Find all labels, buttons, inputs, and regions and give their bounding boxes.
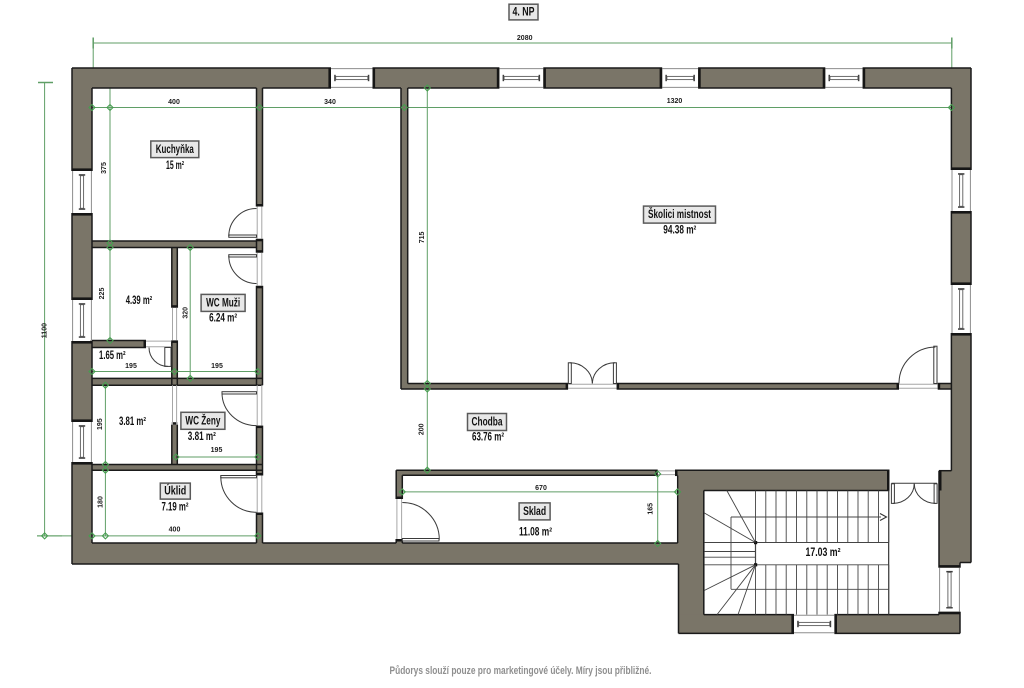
svg-text:1320: 1320: [667, 98, 683, 105]
svg-text:4.39 m²: 4.39 m²: [126, 295, 153, 307]
svg-text:4. NP: 4. NP: [513, 7, 535, 19]
svg-text:400: 400: [168, 99, 180, 106]
svg-text:400: 400: [169, 526, 181, 533]
svg-text:7.19 m²: 7.19 m²: [162, 502, 189, 514]
svg-text:1.65 m²: 1.65 m²: [99, 350, 126, 362]
svg-text:63.76 m²: 63.76 m²: [472, 432, 504, 444]
svg-text:6.24 m²: 6.24 m²: [209, 313, 237, 325]
svg-text:165: 165: [648, 503, 655, 515]
svg-text:195: 195: [211, 363, 223, 370]
svg-text:15 m²: 15 m²: [166, 160, 184, 172]
svg-text:195: 195: [97, 418, 104, 430]
svg-text:3.81 m²: 3.81 m²: [119, 416, 146, 428]
svg-text:Sklad: Sklad: [523, 506, 546, 518]
svg-text:94.38 m²: 94.38 m²: [663, 225, 696, 237]
svg-text:Půdorys slouží pouze pro marke: Půdorys slouží pouze pro marketingové úč…: [390, 665, 652, 677]
svg-text:200: 200: [418, 423, 425, 435]
svg-text:320: 320: [182, 307, 189, 319]
svg-text:340: 340: [324, 99, 336, 106]
svg-text:Chodba: Chodba: [472, 417, 503, 429]
svg-text:WC Ženy: WC Ženy: [185, 414, 220, 427]
svg-text:11.08 m²: 11.08 m²: [519, 527, 552, 539]
svg-text:2080: 2080: [517, 35, 533, 42]
svg-text:670: 670: [535, 485, 547, 492]
svg-text:17.03 m²: 17.03 m²: [806, 547, 841, 559]
svg-text:Kuchyňka: Kuchyňka: [156, 144, 194, 156]
svg-text:3.81 m²: 3.81 m²: [188, 431, 216, 443]
svg-text:Školici mistnost: Školici mistnost: [648, 208, 711, 221]
svg-text:180: 180: [98, 496, 105, 508]
svg-text:Úklid: Úklid: [164, 485, 186, 498]
svg-text:195: 195: [125, 363, 137, 370]
svg-text:WC Muži: WC Muži: [206, 297, 240, 309]
svg-text:715: 715: [419, 231, 426, 243]
svg-text:375: 375: [101, 162, 108, 174]
svg-text:225: 225: [99, 288, 106, 300]
svg-text:195: 195: [211, 447, 223, 454]
svg-text:1100: 1100: [42, 323, 49, 338]
